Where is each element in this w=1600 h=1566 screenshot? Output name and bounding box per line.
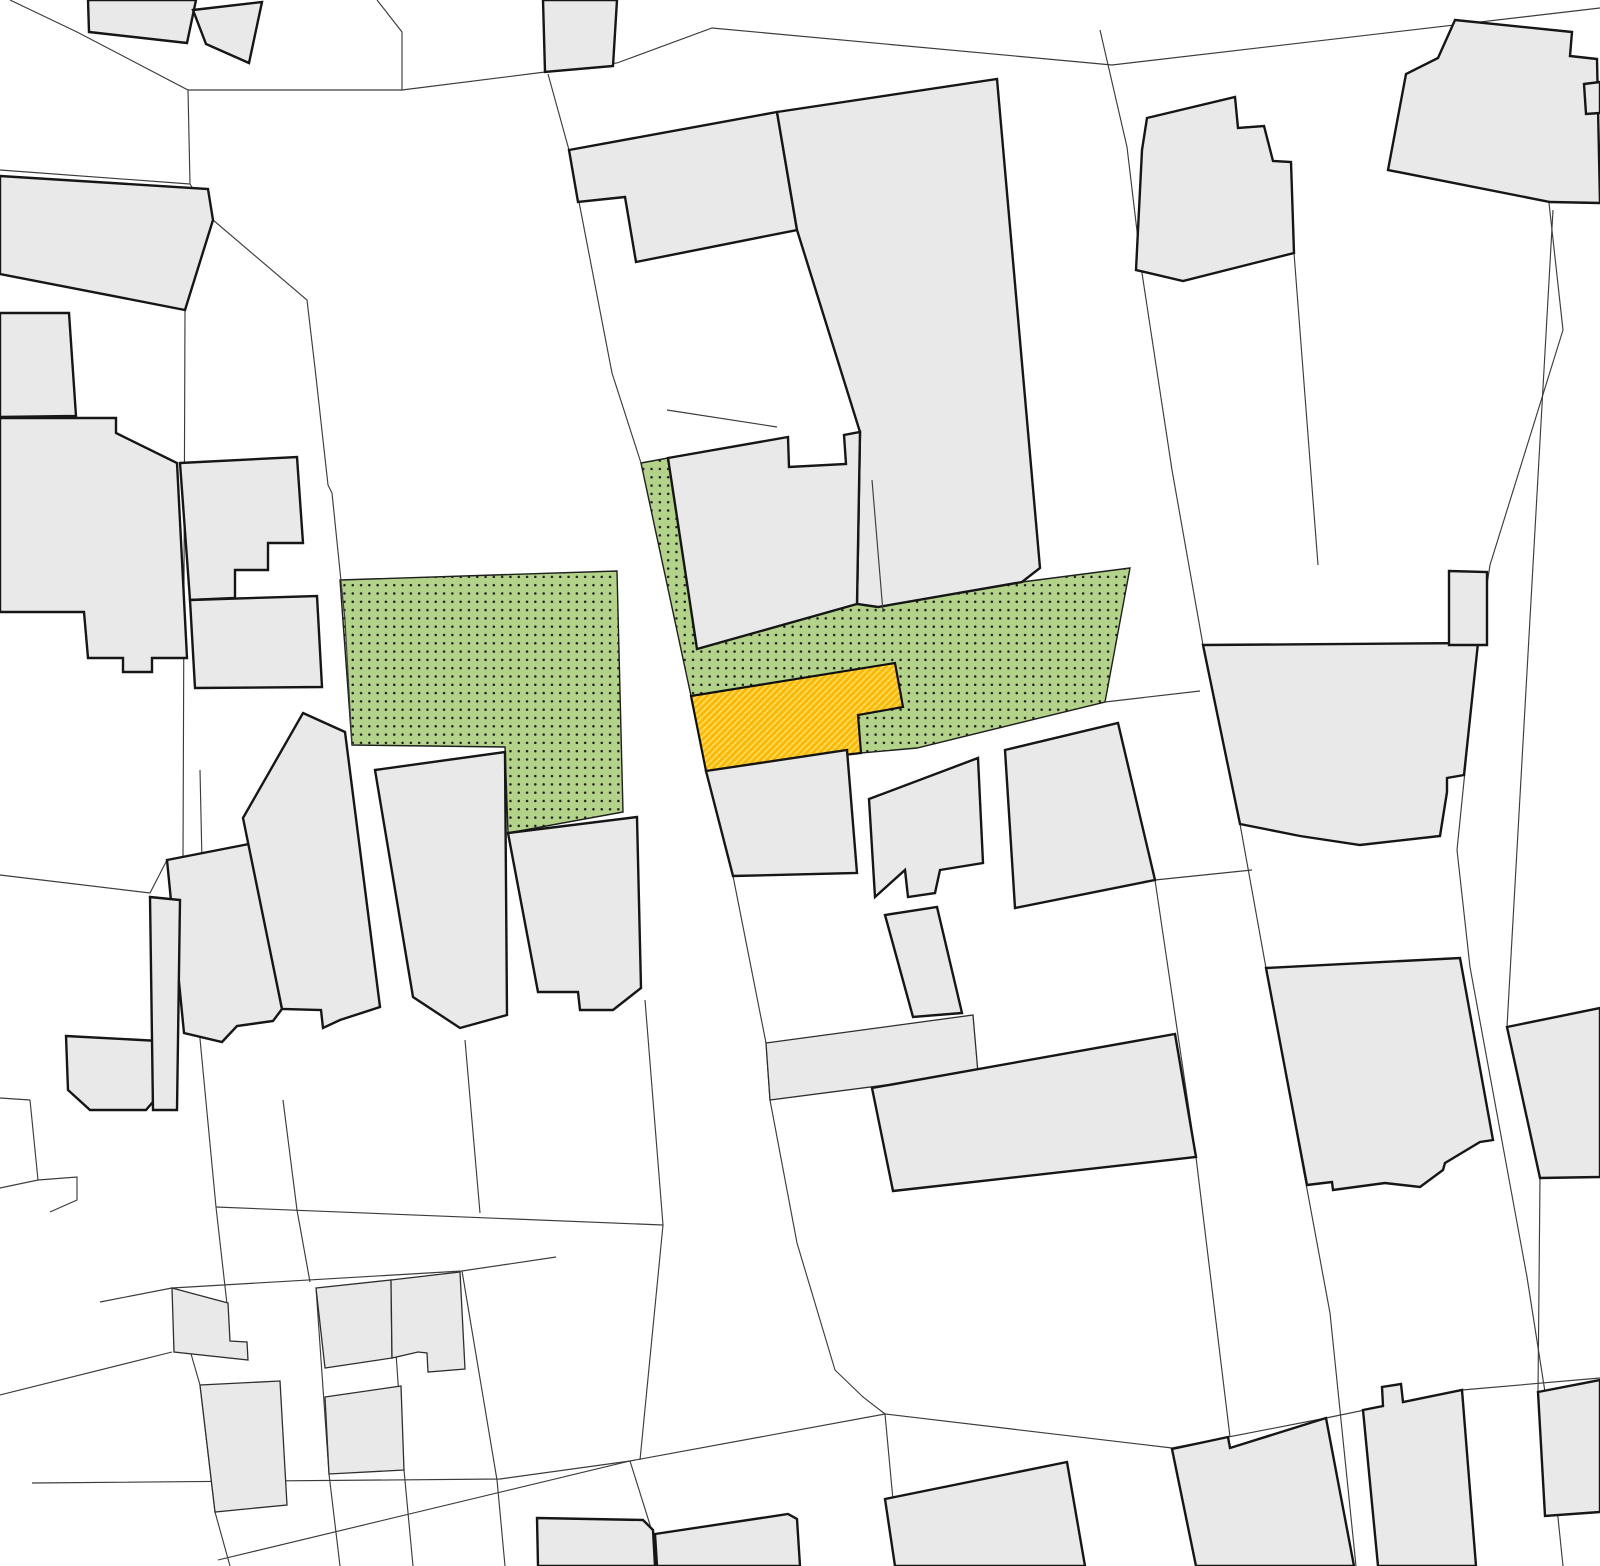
- building-left-4: [190, 596, 322, 688]
- building-right-mid: [1203, 643, 1478, 845]
- building-top-c: [543, 0, 617, 72]
- building-bl-2: [316, 1280, 392, 1368]
- building-bl-4: [200, 1381, 287, 1512]
- building-bottom-k1: [1363, 1384, 1476, 1566]
- building-left-edge-low-b: [150, 897, 180, 1110]
- site-plan-map: [0, 0, 1600, 1566]
- building-left-edge-low-a: [66, 1036, 160, 1110]
- building-right-mid-tab: [1449, 571, 1487, 645]
- building-bottom-k2: [1538, 1380, 1600, 1516]
- site-plan-canvas: [0, 0, 1600, 1566]
- building-left-1: [0, 313, 76, 417]
- building-bl-5: [325, 1386, 404, 1474]
- building-bottom-c1: [537, 1518, 655, 1566]
- building-below-yellow: [706, 750, 857, 876]
- building-top-right-sliver: [1584, 82, 1600, 114]
